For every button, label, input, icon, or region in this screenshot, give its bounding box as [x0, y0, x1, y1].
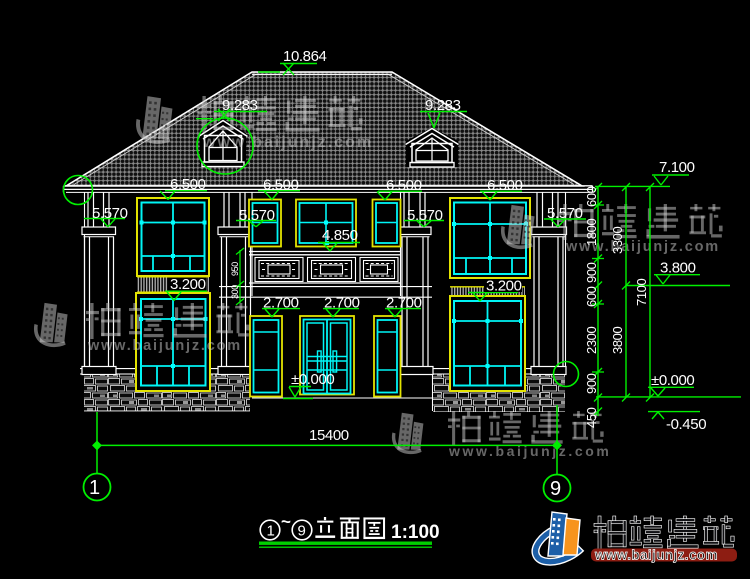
svg-text:6.500: 6.500: [170, 176, 206, 193]
svg-text:9: 9: [298, 523, 306, 540]
svg-text:1:100: 1:100: [391, 522, 440, 543]
svg-text:900: 900: [584, 373, 599, 394]
svg-text:www.baijunjz.com: www.baijunjz.com: [87, 338, 242, 354]
svg-text:5.570: 5.570: [407, 207, 443, 224]
svg-text:±0.000: ±0.000: [291, 371, 334, 388]
svg-text:www.baijunjz.com: www.baijunjz.com: [202, 134, 373, 151]
svg-text:2.700: 2.700: [324, 295, 360, 312]
svg-text:±0.000: ±0.000: [651, 372, 694, 389]
svg-text:3.200: 3.200: [486, 278, 522, 295]
svg-text:4.850: 4.850: [322, 227, 358, 244]
svg-text:3800: 3800: [610, 327, 625, 354]
svg-text:5.570: 5.570: [547, 205, 583, 222]
svg-text:9: 9: [550, 478, 561, 500]
svg-text:3.200: 3.200: [170, 276, 206, 293]
svg-text:900: 900: [584, 262, 599, 283]
svg-text:600: 600: [584, 186, 599, 207]
svg-text:7100: 7100: [634, 279, 649, 306]
svg-text:~: ~: [281, 512, 291, 531]
svg-text:7.100: 7.100: [659, 159, 695, 176]
svg-text:3300: 3300: [610, 227, 625, 254]
svg-text:2.700: 2.700: [386, 295, 422, 312]
svg-text:2.700: 2.700: [263, 295, 299, 312]
svg-text:9.283: 9.283: [425, 97, 461, 114]
svg-text:1800: 1800: [584, 219, 599, 246]
svg-text:1: 1: [267, 523, 275, 540]
svg-text:300: 300: [230, 285, 240, 299]
svg-text:450: 450: [584, 407, 599, 428]
svg-text:2300: 2300: [584, 327, 599, 354]
svg-text:15400: 15400: [309, 427, 349, 444]
svg-text:6.500: 6.500: [487, 177, 523, 194]
svg-text:5.570: 5.570: [92, 205, 128, 222]
svg-text:6.500: 6.500: [386, 177, 422, 194]
svg-text:-0.450: -0.450: [666, 416, 706, 433]
svg-text:1: 1: [89, 477, 100, 499]
svg-text:950: 950: [230, 262, 240, 276]
svg-text:5.570: 5.570: [239, 207, 275, 224]
svg-text:6.500: 6.500: [263, 177, 299, 194]
svg-text:3.800: 3.800: [660, 260, 696, 277]
svg-text:600: 600: [584, 286, 599, 307]
svg-text:10.864: 10.864: [283, 48, 327, 65]
svg-text:9.283: 9.283: [222, 97, 258, 114]
svg-text:www.baijunjz.com: www.baijunjz.com: [594, 548, 718, 563]
